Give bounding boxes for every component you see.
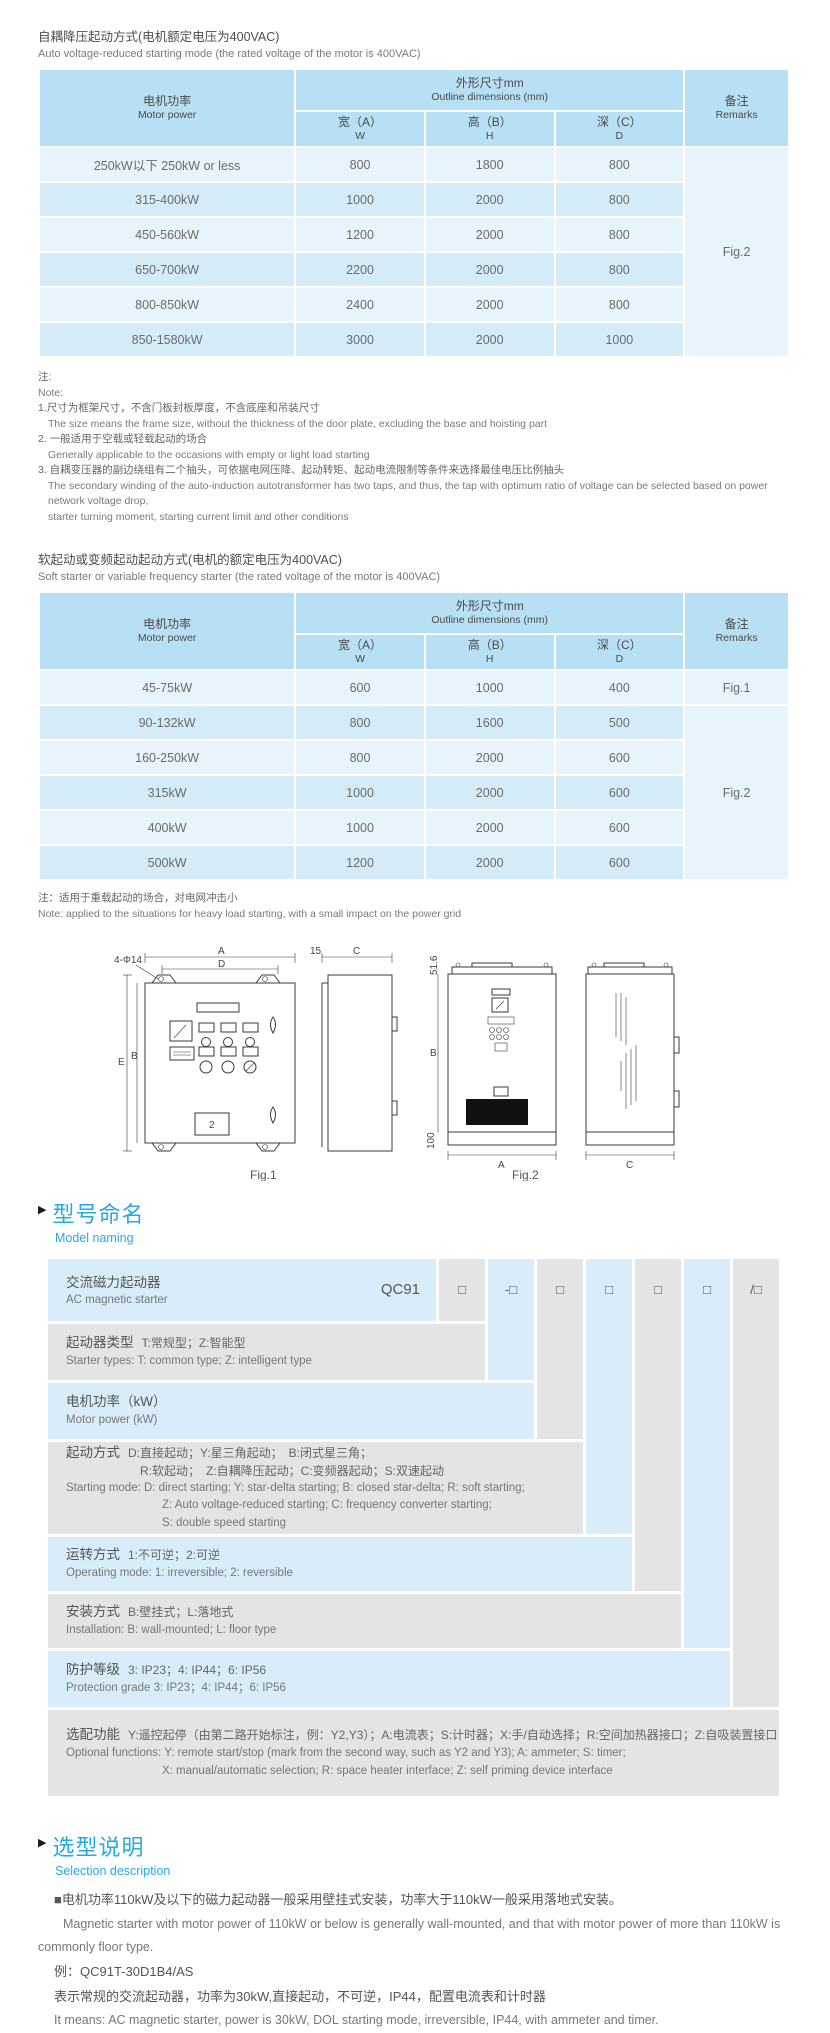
notes-block: 注: Note: 1.尺寸为框架尺寸，不含门板封板厚度，不含底座和吊装尺寸 Th…: [38, 370, 790, 525]
header-width: 宽（A）W: [296, 635, 424, 669]
svg-text:4-Φ14: 4-Φ14: [114, 955, 142, 966]
svg-text:C: C: [626, 1160, 633, 1171]
code-box: /□: [750, 1259, 761, 1321]
table2-title-cn: 软起动或变频起动起动方式(电机的额定电压为400VAC): [38, 549, 790, 568]
cell-height: 1800: [426, 148, 554, 181]
svg-text:15: 15: [310, 946, 322, 957]
cell-width: 3000: [296, 323, 424, 356]
header-motor-power: 电机功率Motor power: [40, 70, 294, 146]
cell-remarks: Fig.2: [685, 148, 788, 356]
header-width: 宽（A）W: [296, 112, 424, 146]
section-title-en: Model naming: [55, 1231, 790, 1245]
cell-width: 1200: [296, 218, 424, 251]
cell-height: 1000: [426, 671, 554, 704]
naming-row-starter-type: 起动器类型T:常规型；Z:智能型 Starter types: T: commo…: [48, 1324, 485, 1380]
table-row: 160-250kW 800 2000 600: [40, 741, 788, 774]
code-box: □: [703, 1259, 711, 1321]
header-height: 高（B）H: [426, 635, 554, 669]
table1-title-en: Auto voltage-reduced starting mode (the …: [38, 48, 790, 60]
section-title-en: Selection description: [55, 1864, 790, 1878]
header-outline-dimensions: 外形尺寸mmOutline dimensions (mm): [296, 593, 683, 633]
svg-text:2: 2: [209, 1120, 215, 1131]
header-depth: 深（C）D: [556, 112, 684, 146]
cell-height: 1600: [426, 706, 554, 739]
cell-power: 850-1580kW: [40, 323, 294, 356]
cell-remarks: Fig.2: [685, 706, 788, 879]
table-row: 500kW 1200 2000 600: [40, 846, 788, 879]
header-depth: 深（C）D: [556, 635, 684, 669]
naming-label-en: AC magnetic starter: [66, 1293, 169, 1309]
section-marker-icon: ▶: [38, 1836, 46, 1849]
note-item: The secondary winding of the auto-induct…: [38, 479, 790, 510]
selection-heading: ▶ 选型说明: [38, 1830, 790, 1862]
code-box: □: [556, 1259, 564, 1321]
cell-height: 2000: [426, 253, 554, 286]
cell-height: 2000: [426, 218, 554, 251]
note-item: 注：适用于重载起动的场合，对电网冲击小: [38, 891, 790, 907]
note-label-cn: 注:: [38, 370, 790, 386]
selection-paragraph-en: Magnetic starter with motor power of 110…: [38, 1913, 790, 1961]
cell-width: 1000: [296, 811, 424, 844]
table-row: 315kW 1000 2000 600: [40, 776, 788, 809]
table-row: 400kW 1000 2000 600: [40, 811, 788, 844]
svg-text:A: A: [218, 946, 225, 957]
svg-text:D: D: [218, 959, 225, 970]
note-item: The size means the frame size, without t…: [38, 417, 790, 433]
cell-width: 800: [296, 148, 424, 181]
cell-power: 800-850kW: [40, 288, 294, 321]
cell-power: 90-132kW: [40, 706, 294, 739]
naming-row-motor-power: 电机功率（kW） Motor power (kW): [48, 1383, 534, 1439]
cell-width: 800: [296, 706, 424, 739]
fig1-caption: Fig.1: [250, 1168, 277, 1181]
naming-row-protection-grade: 防护等级3: IP23；4: IP44；6: IP56 Protection g…: [48, 1651, 730, 1707]
table-row: 90-132kW 800 1600 500 Fig.2: [40, 706, 788, 739]
svg-text:B: B: [430, 1048, 437, 1059]
header-remarks: 备注Remarks: [685, 593, 788, 669]
svg-text:C: C: [353, 946, 360, 957]
naming-row-operating-mode: 运转方式1:不可逆；2:可逆 Operating mode: 1: irreve…: [48, 1537, 632, 1591]
dimensions-table-soft-starter: 电机功率Motor power 外形尺寸mmOutline dimensions…: [38, 591, 790, 881]
cell-width: 1000: [296, 183, 424, 216]
cell-depth: 800: [556, 148, 684, 181]
code-box: -□: [505, 1259, 517, 1321]
cell-depth: 800: [556, 288, 684, 321]
model-prefix: QC91: [381, 1281, 420, 1298]
cell-power: 45-75kW: [40, 671, 294, 704]
fig1-side-view: 15 C: [310, 946, 397, 1151]
code-strip: /□: [733, 1259, 779, 1707]
cell-width: 2400: [296, 288, 424, 321]
table1-title-cn: 自耦降压起动方式(电机额定电压为400VAC): [38, 26, 790, 45]
header-height: 高（B）H: [426, 112, 554, 146]
cell-width: 800: [296, 741, 424, 774]
outline-drawings: A D 4-Φ14 E B: [100, 941, 790, 1181]
naming-row-starting-mode: 起动方式D:直接起动；Y:星三角起动； B:闭式星三角； R:软起动； Z:自耦…: [48, 1442, 583, 1534]
cell-depth: 800: [556, 253, 684, 286]
cell-width: 600: [296, 671, 424, 704]
cell-power: 315kW: [40, 776, 294, 809]
selection-body: ■电机功率110kW及以下的磁力起动器一般采用壁挂式安装，功率大于110kW一般…: [38, 1888, 790, 2033]
header-motor-power: 电机功率Motor power: [40, 593, 294, 669]
cabinet-drawings-svg: A D 4-Φ14 E B: [100, 941, 800, 1181]
table-row: 45-75kW 600 1000 400 Fig.1: [40, 671, 788, 704]
svg-text:A: A: [498, 1160, 505, 1171]
cell-depth: 600: [556, 776, 684, 809]
cell-power: 160-250kW: [40, 741, 294, 774]
cell-height: 2000: [426, 846, 554, 879]
cell-height: 2000: [426, 811, 554, 844]
cell-width: 2200: [296, 253, 424, 286]
note-under-table2: 注：适用于重载起动的场合，对电网冲击小 Note: applied to the…: [38, 891, 790, 923]
naming-label-cn: 交流磁力起动器: [66, 1271, 161, 1291]
code-box: □: [458, 1259, 466, 1321]
cell-power: 250kW以下 250kW or less: [40, 148, 294, 181]
cell-remarks: Fig.1: [685, 671, 788, 704]
code-strip: -□: [488, 1259, 534, 1380]
naming-row-installation: 安装方式B:壁挂式；L:落地式 Installation: B: wall-mo…: [48, 1594, 681, 1648]
code-strip: □: [586, 1259, 632, 1534]
code-strip: □: [684, 1259, 730, 1648]
table-row: 650-700kW 2200 2000 800: [40, 253, 788, 286]
cell-power: 650-700kW: [40, 253, 294, 286]
table-row: 450-560kW 1200 2000 800: [40, 218, 788, 251]
svg-text:51.6: 51.6: [429, 955, 440, 975]
table-row: 800-850kW 2400 2000 800: [40, 288, 788, 321]
cell-height: 2000: [426, 183, 554, 216]
table-row: 315-400kW 1000 2000 800: [40, 183, 788, 216]
code-box: □: [654, 1259, 662, 1321]
naming-row-optional-functions: 选配功能Y:遥控起停（由第二路开始标注，例：Y2,Y3）；A:电流表；S:计时器…: [48, 1710, 779, 1796]
selection-example-cn: 表示常规的交流起动器，功率为30kW,直接起动，不可逆，IP44，配置电流表和计…: [38, 1985, 790, 2010]
note-item: Generally applicable to the occasions wi…: [38, 448, 790, 464]
selection-example-en: It means: AC magnetic starter, power is …: [38, 2009, 790, 2033]
cell-depth: 600: [556, 741, 684, 774]
cell-depth: 800: [556, 183, 684, 216]
dimensions-table-auto-voltage: 电机功率Motor power 外形尺寸mmOutline dimensions…: [38, 68, 790, 358]
code-strip: □: [537, 1259, 583, 1439]
note-item: Note: applied to the situations for heav…: [38, 907, 790, 923]
cell-height: 2000: [426, 776, 554, 809]
svg-text:E: E: [118, 1057, 125, 1068]
note-item: starter turning moment, starting current…: [38, 510, 790, 526]
fig2-caption: Fig.2: [512, 1168, 539, 1181]
section-marker-icon: ▶: [38, 1203, 46, 1216]
note-item: 1.尺寸为框架尺寸，不含门板封板厚度，不含底座和吊装尺寸: [38, 401, 790, 417]
note-item: 3. 自耦变压器的副边绕组有二个抽头，可依据电网压降、起动转矩、起动电流限制等条…: [38, 463, 790, 479]
code-strip: □: [439, 1259, 485, 1321]
selection-paragraph-cn: ■电机功率110kW及以下的磁力起动器一般采用壁挂式安装，功率大于110kW一般…: [38, 1888, 790, 1913]
header-outline-dimensions: 外形尺寸mmOutline dimensions (mm): [296, 70, 683, 110]
cell-width: 1200: [296, 846, 424, 879]
code-box: □: [605, 1259, 613, 1321]
note-label-en: Note:: [38, 386, 790, 402]
model-naming-heading: ▶ 型号命名: [38, 1197, 790, 1229]
svg-text:100: 100: [426, 1132, 437, 1149]
code-strip: □: [635, 1259, 681, 1591]
cell-depth: 500: [556, 706, 684, 739]
cell-height: 2000: [426, 288, 554, 321]
naming-row-product: 交流磁力起动器 AC magnetic starter QC91: [48, 1259, 436, 1321]
svg-text:B: B: [131, 1051, 138, 1062]
cell-depth: 400: [556, 671, 684, 704]
cell-power: 400kW: [40, 811, 294, 844]
cell-height: 2000: [426, 323, 554, 356]
cell-power: 500kW: [40, 846, 294, 879]
cell-width: 1000: [296, 776, 424, 809]
model-naming-table: □ -□ □ □ □ □ /□ 交流磁力起动器 AC magnetic star…: [48, 1259, 784, 1796]
cell-depth: 600: [556, 811, 684, 844]
fig1-front-view: A D 4-Φ14 E B: [114, 946, 295, 1151]
cell-power: 315-400kW: [40, 183, 294, 216]
cell-power: 450-560kW: [40, 218, 294, 251]
table-row: 850-1580kW 3000 2000 1000: [40, 323, 788, 356]
cell-height: 2000: [426, 741, 554, 774]
cell-depth: 800: [556, 218, 684, 251]
cell-depth: 1000: [556, 323, 684, 356]
note-item: 2. 一般适用于空载或轻载起动的场合: [38, 432, 790, 448]
cell-depth: 600: [556, 846, 684, 879]
fig2-side-view: C: [586, 963, 679, 1171]
table2-title-en: Soft starter or variable frequency start…: [38, 571, 790, 583]
section-title-cn: 型号命名: [52, 1197, 144, 1229]
fig2-front-view: 51.6 B 100 A: [426, 955, 556, 1171]
table-row: 250kW以下 250kW or less 800 1800 800 Fig.2: [40, 148, 788, 181]
header-remarks: 备注Remarks: [685, 70, 788, 146]
page: 自耦降压起动方式(电机额定电压为400VAC) Auto voltage-red…: [0, 0, 830, 2033]
selection-example: 例：QC91T-30D1B4/AS: [38, 1960, 790, 1985]
section-title-cn: 选型说明: [52, 1830, 144, 1862]
